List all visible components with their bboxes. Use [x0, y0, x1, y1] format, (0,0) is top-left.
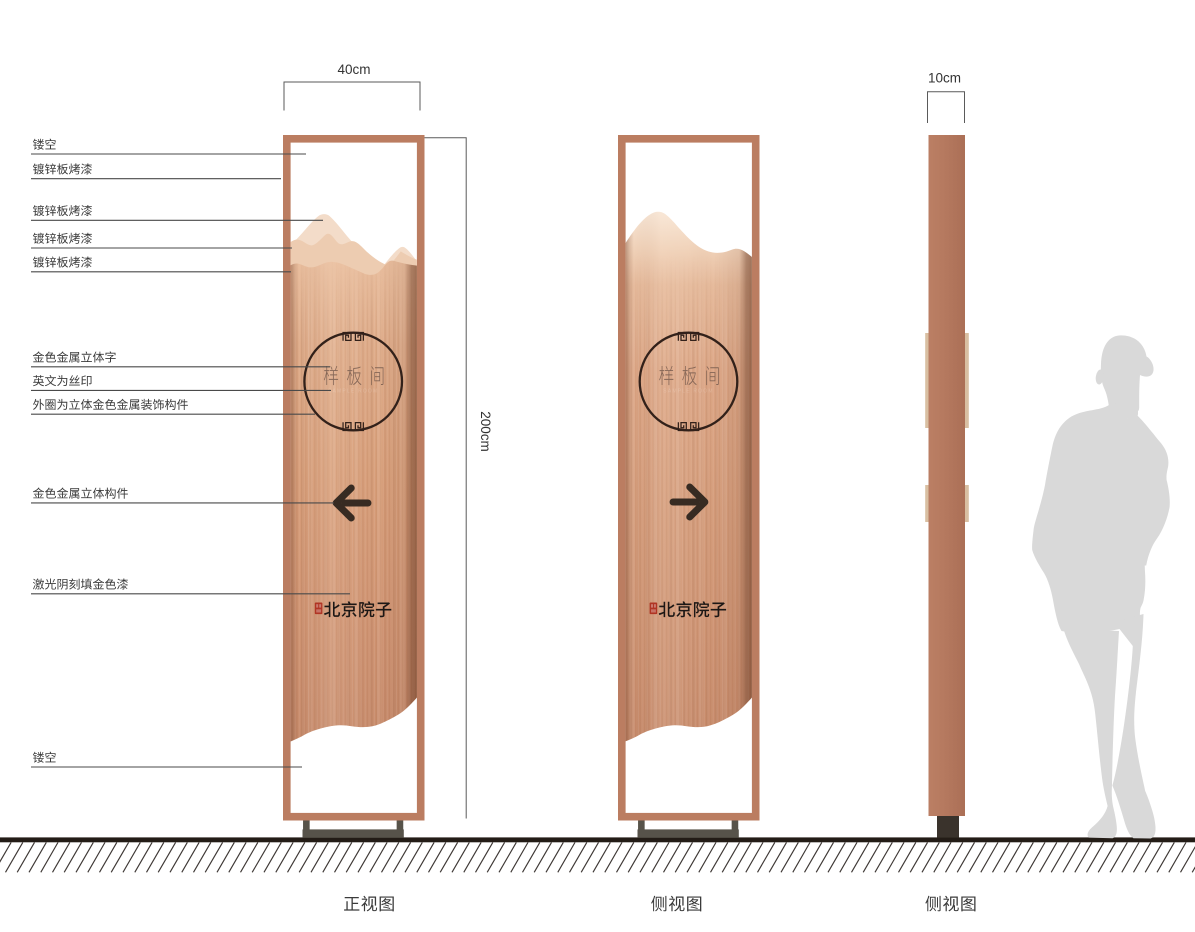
svg-text:SAMPLE ROOM: SAMPLE ROOM: [663, 389, 713, 395]
svg-text:40cm: 40cm: [337, 62, 370, 77]
svg-text:200cm: 200cm: [478, 411, 493, 452]
svg-text:SAMPLE ROOM: SAMPLE ROOM: [328, 389, 378, 395]
svg-text:10cm: 10cm: [928, 71, 961, 86]
